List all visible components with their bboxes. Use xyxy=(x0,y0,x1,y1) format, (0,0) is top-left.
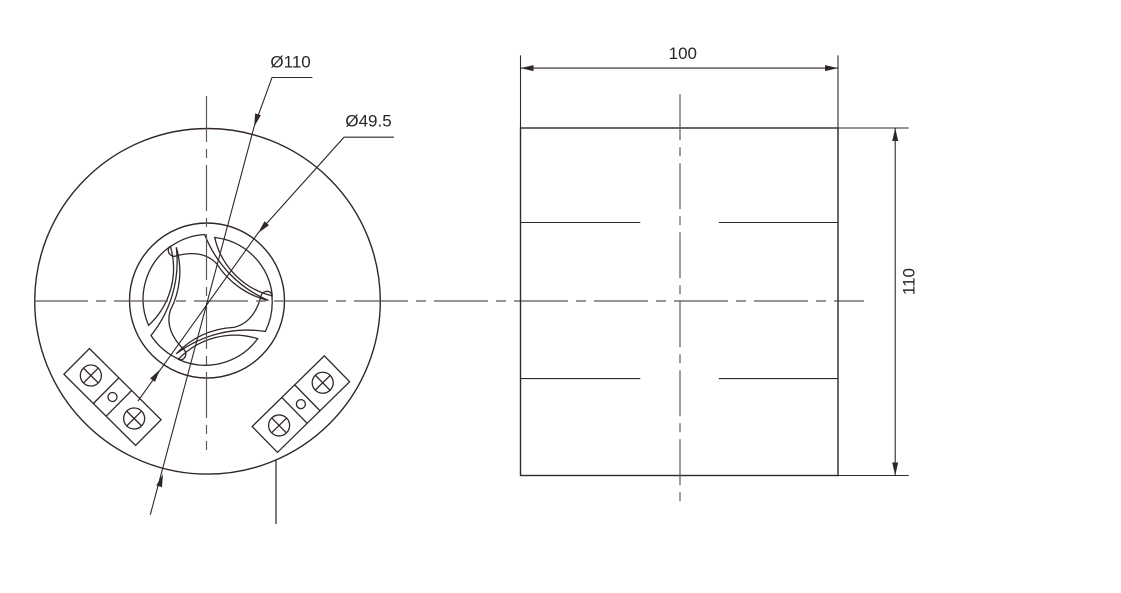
svg-text:Ø49.5: Ø49.5 xyxy=(345,111,391,130)
svg-text:100: 100 xyxy=(669,44,697,63)
svg-text:110: 110 xyxy=(900,268,919,295)
svg-text:Ø110: Ø110 xyxy=(270,53,310,72)
